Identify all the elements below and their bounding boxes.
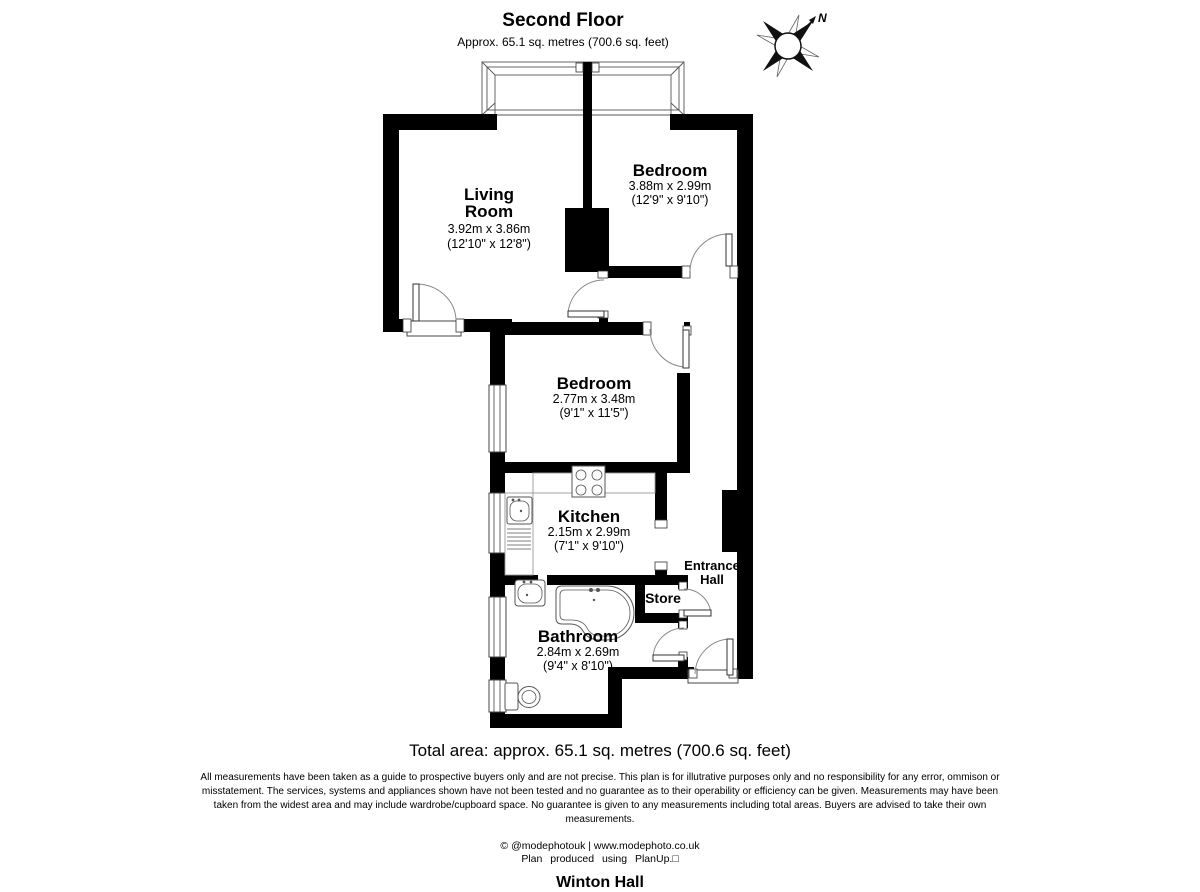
door-leaf (568, 311, 604, 317)
wall (490, 319, 505, 385)
wall (490, 714, 622, 728)
bedroom2-window (489, 385, 506, 452)
sink-tap (512, 499, 515, 502)
door-leaf (726, 234, 732, 266)
bay-window-mitre (482, 62, 495, 75)
bath-tap (589, 588, 593, 592)
disclaimer-line: taken from the widest area and may inclu… (0, 799, 1200, 813)
compass-circle (775, 33, 801, 59)
wall (608, 266, 690, 278)
disclaimer-text: All measurements have been taken as a gu… (0, 771, 1200, 827)
living-room-door (413, 284, 456, 321)
store-label: Store (645, 590, 681, 606)
building-name: Winton Hall (0, 874, 1200, 892)
window (489, 680, 506, 712)
bay-window-mitre (671, 62, 684, 75)
basin-drain (526, 594, 528, 596)
compass-icon: N (757, 11, 827, 77)
sink-drain (520, 510, 522, 512)
duct-block (722, 490, 740, 552)
door-jamb (655, 520, 667, 528)
credit-planup: Plan produced using PlanUp.□ (0, 853, 1200, 866)
sink-icon (507, 497, 532, 549)
bathroom-window-1 (489, 597, 506, 657)
bedroom2-dims-imperial: (9'1" x 11'5") (559, 406, 628, 420)
wall (490, 553, 505, 597)
wall (547, 575, 688, 585)
door-jamb (682, 266, 690, 278)
wall (505, 322, 650, 335)
wall (655, 462, 667, 527)
wall (737, 114, 753, 679)
living-room-label-2: Room (465, 202, 513, 221)
basin-icon (515, 580, 545, 606)
toilet-icon (505, 683, 540, 710)
wall (383, 114, 399, 332)
window-jamb (576, 63, 583, 72)
door-leaf (684, 610, 711, 616)
kitchen-label: Kitchen (558, 507, 620, 526)
door-leaf (413, 284, 419, 321)
door-swing-arc (690, 234, 729, 271)
store-door (684, 589, 711, 616)
door-jamb (598, 271, 608, 278)
door-jamb (456, 319, 464, 332)
bedroom1-door (690, 234, 732, 271)
basin-tap (530, 581, 533, 584)
wall (490, 657, 505, 680)
window (489, 493, 506, 553)
chimney-breast (565, 208, 609, 272)
door-jamb (655, 562, 667, 570)
window-jamb (592, 63, 599, 72)
door-swing-arc (650, 329, 686, 367)
disclaimer-line: All measurements have been taken as a gu… (0, 771, 1200, 785)
door-leaf (683, 330, 689, 368)
door-swing-arc (695, 639, 731, 674)
hall-door (568, 280, 604, 317)
sink-tap (518, 499, 521, 502)
north-label: N (818, 11, 827, 25)
bathroom-label: Bathroom (538, 627, 618, 646)
bedroom1-label: Bedroom (633, 161, 708, 180)
door-swing-arc (416, 284, 456, 320)
bedroom1-dims-metric: 3.88m x 2.99m (629, 179, 712, 193)
wall (383, 114, 497, 130)
basin-tap (523, 581, 526, 584)
kitchen-window (489, 493, 506, 553)
door-leaf (653, 655, 684, 661)
bathroom-door (653, 628, 684, 661)
wall (608, 667, 694, 679)
credits: © @modephotouk | www.modephoto.co.uk Pla… (0, 840, 1200, 866)
bedroom2-door (650, 329, 689, 368)
bath-drain (593, 599, 595, 601)
bath-tap (596, 588, 600, 592)
entrance-hall-label: Entrance (684, 558, 740, 573)
door-jamb (689, 669, 697, 678)
door-threshold (407, 321, 461, 336)
credit-photographer: © @modephotouk | www.modephoto.co.uk (0, 840, 1200, 853)
party-wall (583, 62, 592, 208)
entrance-hall-label-2: Hall (700, 572, 724, 587)
hob-icon (572, 466, 605, 497)
living-room-dims-imperial: (12'10" x 12'8") (447, 237, 531, 251)
plan-footer: Total area: approx. 65.1 sq. metres (700… (0, 741, 1200, 892)
bathroom-dims-metric: 2.84m x 2.69m (537, 645, 620, 659)
window (489, 597, 506, 657)
toilet-bowl (518, 687, 540, 708)
bathroom-dims-imperial: (9'4" x 8'10") (543, 659, 613, 673)
bedroom2-label: Bedroom (557, 374, 632, 393)
bedroom1-dims-imperial: (12'9" x 9'10") (632, 193, 709, 207)
window (489, 385, 506, 452)
wall (677, 373, 690, 473)
kitchen-dims-imperial: (7'1" x 9'10") (554, 539, 624, 553)
bay-window-mitre (482, 103, 495, 115)
door-jamb (730, 266, 738, 278)
disclaimer-line: misstatement. The services, systems and … (0, 785, 1200, 799)
door-leaf (727, 639, 733, 675)
toilet-cistern (505, 683, 518, 710)
total-area-text: Total area: approx. 65.1 sq. metres (700… (0, 741, 1200, 761)
disclaimer-line: measurements. (0, 813, 1200, 827)
kitchen-dims-metric: 2.15m x 2.99m (548, 525, 631, 539)
bay-window-mitre (671, 103, 684, 115)
living-room-dims-metric: 3.92m x 3.86m (448, 222, 531, 236)
bedroom2-dims-metric: 2.77m x 3.48m (553, 392, 636, 406)
door-jamb (403, 319, 411, 332)
bathroom-window-2 (489, 680, 506, 712)
